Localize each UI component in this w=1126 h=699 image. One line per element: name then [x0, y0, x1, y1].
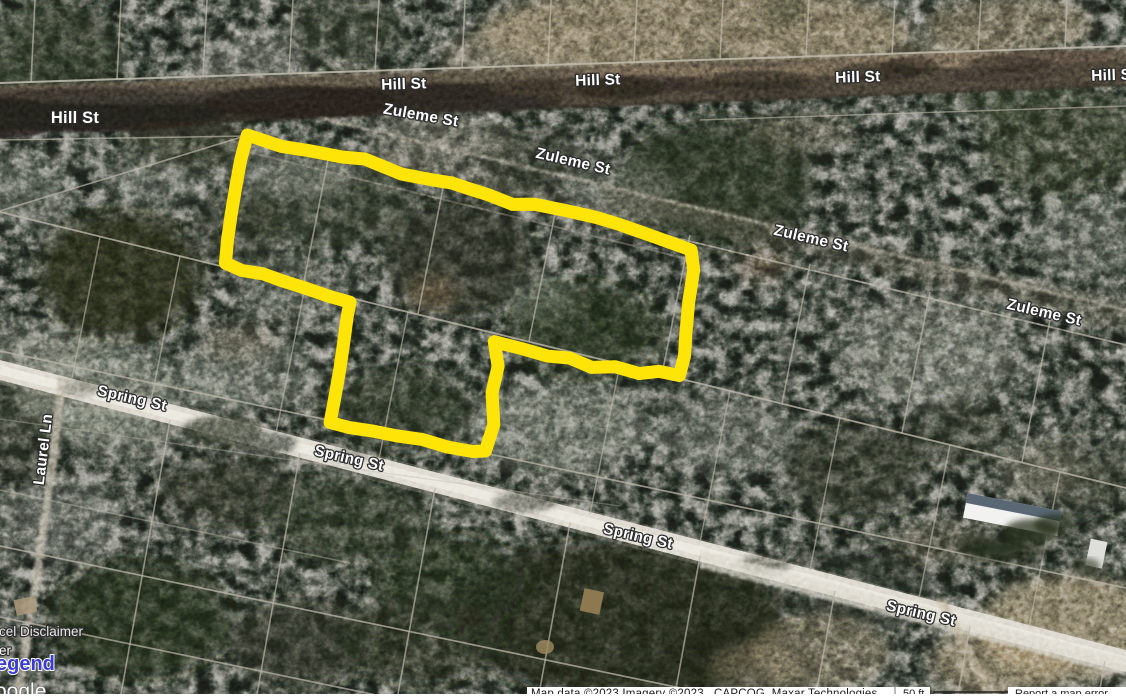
svg-text:50 ft: 50 ft — [903, 688, 924, 694]
svg-text:Hill St: Hill St — [381, 75, 427, 94]
svg-text:Hill St: Hill St — [1091, 66, 1126, 85]
svg-text:oogle: oogle — [0, 680, 46, 694]
svg-text:cel Disclaimer: cel Disclaimer — [0, 624, 84, 639]
svg-text:Hill St: Hill St — [51, 109, 99, 127]
svg-text:Report a map error: Report a map error — [1015, 688, 1108, 694]
svg-text:Hill St: Hill St — [835, 68, 881, 87]
svg-text:Map data ©2023 Imagery ©2023: Map data ©2023 Imagery ©2023 , CAPCOG, M… — [531, 688, 878, 694]
svg-text:egend: egend — [0, 653, 55, 675]
svg-text:Hill St: Hill St — [575, 71, 621, 90]
